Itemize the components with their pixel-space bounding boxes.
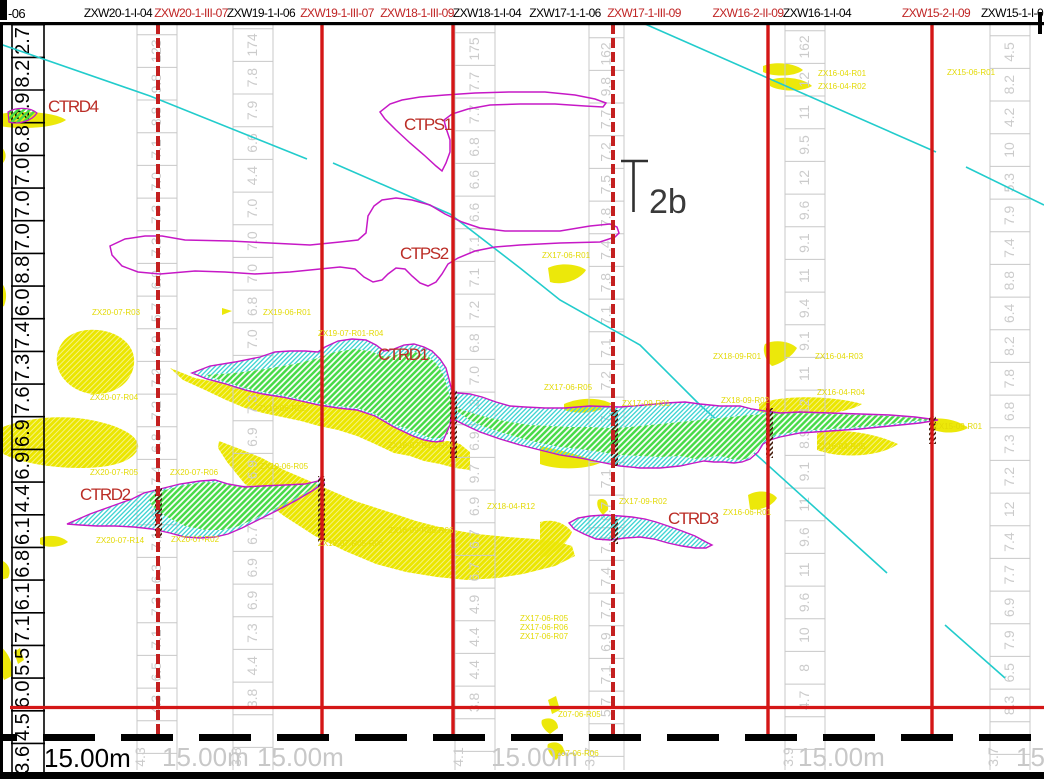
svg-text:ZX16-04-R05: ZX16-04-R05 <box>817 442 866 451</box>
svg-text:6.0: 6.0 <box>12 288 34 316</box>
svg-text:15.00m: 15.00m <box>44 743 131 773</box>
svg-text:ZX20-07-R03: ZX20-07-R03 <box>92 308 141 317</box>
svg-text:6.6: 6.6 <box>244 133 260 153</box>
svg-text:4.4: 4.4 <box>244 656 260 676</box>
svg-text:8: 8 <box>796 664 812 672</box>
svg-text:4.4: 4.4 <box>466 660 482 680</box>
svg-text:ZX18-09-R01: ZX18-09-R01 <box>713 352 762 361</box>
svg-text:5.3: 5.3 <box>1001 173 1017 193</box>
svg-text:ZXW16-2-II-09: ZXW16-2-II-09 <box>713 6 785 20</box>
svg-text:ZXW19-1-III-07: ZXW19-1-III-07 <box>300 6 375 20</box>
svg-text:ZXW18-1-III-09: ZXW18-1-III-09 <box>380 6 455 20</box>
svg-text:9.6: 9.6 <box>796 592 812 612</box>
svg-text:ZX16-04-R04: ZX16-04-R04 <box>817 388 866 397</box>
svg-text:9.6: 9.6 <box>796 527 812 547</box>
svg-text:3.8: 3.8 <box>244 688 260 708</box>
svg-text:15.00m: 15.00m <box>1016 742 1044 772</box>
svg-text:7.4: 7.4 <box>12 321 34 349</box>
svg-text:7.0: 7.0 <box>12 223 34 251</box>
svg-text:ZX17-09-R02: ZX17-09-R02 <box>619 497 668 506</box>
svg-text:12: 12 <box>1001 501 1017 517</box>
svg-text:CTRD2: CTRD2 <box>80 485 131 504</box>
svg-text:ZX17-06-R05: ZX17-06-R05 <box>544 383 593 392</box>
svg-text:8.2: 8.2 <box>1001 336 1017 356</box>
svg-text:4.9: 4.9 <box>466 594 482 614</box>
svg-text:ZX16-04-R01: ZX16-04-R01 <box>818 69 867 78</box>
svg-text:ZXW17-1-1-06: ZXW17-1-1-06 <box>529 6 601 20</box>
svg-text:9.1: 9.1 <box>796 233 812 253</box>
svg-text:CTPS2: CTPS2 <box>400 244 449 263</box>
svg-text:7.9: 7.9 <box>244 100 260 120</box>
svg-text:15.00m: 15.00m <box>257 742 344 772</box>
svg-text:4.3: 4.3 <box>132 747 148 767</box>
svg-text:ZX18-09-R02: ZX18-09-R02 <box>721 396 770 405</box>
svg-text:175: 175 <box>466 37 482 61</box>
svg-text:ZXW20-1-III-07: ZXW20-1-III-07 <box>154 6 229 20</box>
svg-text:6.8: 6.8 <box>466 333 482 353</box>
svg-text:ZX17-06-R05: ZX17-06-R05 <box>520 614 569 623</box>
svg-text:6.9: 6.9 <box>244 460 260 480</box>
svg-text:ZX17-06-R06: ZX17-06-R06 <box>520 623 569 632</box>
svg-text:CTRD3: CTRD3 <box>668 509 719 528</box>
svg-text:3.9: 3.9 <box>780 747 796 767</box>
svg-text:162: 162 <box>796 35 812 59</box>
svg-text:ZX19-06-R01: ZX19-06-R01 <box>263 308 312 317</box>
svg-text:ZX20-07-R05: ZX20-07-R05 <box>90 468 139 477</box>
svg-text:8.8: 8.8 <box>12 256 34 284</box>
svg-text:ZX20-07-R02: ZX20-07-R02 <box>171 535 220 544</box>
svg-text:ZX19-06-R02: ZX19-06-R02 <box>258 404 307 413</box>
svg-text:ZX18-04-R12: ZX18-04-R12 <box>487 502 536 511</box>
svg-text:5.5: 5.5 <box>12 648 34 676</box>
svg-text:Z07-06-R06: Z07-06-R06 <box>556 749 599 758</box>
svg-text:9.6: 9.6 <box>796 200 812 220</box>
svg-text:6.7: 6.7 <box>466 562 482 582</box>
svg-text:11: 11 <box>796 562 812 577</box>
svg-text:7.2: 7.2 <box>1001 467 1017 487</box>
svg-text:9.1: 9.1 <box>796 462 812 482</box>
svg-text:3.6: 3.6 <box>12 746 34 774</box>
svg-text:6.4: 6.4 <box>1001 303 1017 323</box>
svg-text:6.9: 6.9 <box>1001 597 1017 617</box>
svg-text:6.7: 6.7 <box>466 529 482 549</box>
svg-text:6.1: 6.1 <box>12 582 34 610</box>
svg-text:6.9: 6.9 <box>244 558 260 578</box>
svg-text:9.1: 9.1 <box>796 331 812 351</box>
svg-text:ZX16-04-R02: ZX16-04-R02 <box>818 82 867 91</box>
svg-text:9.7: 9.7 <box>466 464 482 484</box>
svg-text:6.8: 6.8 <box>12 550 34 578</box>
svg-text:8.2: 8.2 <box>12 60 34 88</box>
svg-text:12: 12 <box>796 170 812 186</box>
svg-text:ZXW17-1-III-09: ZXW17-1-III-09 <box>607 6 682 20</box>
svg-text:Z07-06-R05: Z07-06-R05 <box>558 710 601 719</box>
svg-text:6.9: 6.9 <box>466 496 482 516</box>
svg-text:7.0: 7.0 <box>244 329 260 349</box>
svg-text:ZX18-07-R13-R14: ZX18-07-R13-R14 <box>388 441 454 450</box>
svg-text:6.9: 6.9 <box>466 431 482 451</box>
svg-text:7.0: 7.0 <box>12 190 34 218</box>
svg-text:7.3: 7.3 <box>1001 434 1017 454</box>
svg-text:15.00m: 15.00m <box>798 742 885 772</box>
svg-text:ZX20-07-R04: ZX20-07-R04 <box>90 393 139 402</box>
svg-text:174: 174 <box>244 33 260 57</box>
svg-text:6.9: 6.9 <box>12 452 34 480</box>
svg-text:7.8: 7.8 <box>1001 369 1017 389</box>
svg-text:6.6: 6.6 <box>466 202 482 222</box>
svg-text:11: 11 <box>796 366 812 381</box>
svg-text:ZXW16-1-I-04: ZXW16-1-I-04 <box>783 6 852 20</box>
svg-text:7.4: 7.4 <box>1001 532 1017 552</box>
svg-text:ZX18-09-R05-R06: ZX18-09-R05-R06 <box>388 526 454 535</box>
svg-text:ZX20-07-R14: ZX20-07-R14 <box>96 536 145 545</box>
svg-text:ZX16-04-R03: ZX16-04-R03 <box>815 352 864 361</box>
svg-text:6.8: 6.8 <box>1001 401 1017 421</box>
svg-text:7.9: 7.9 <box>1001 205 1017 225</box>
svg-text:6.1: 6.1 <box>12 517 34 545</box>
svg-text:8.3: 8.3 <box>1001 695 1017 715</box>
svg-text:7.8: 7.8 <box>244 68 260 88</box>
svg-text:4.4: 4.4 <box>466 627 482 647</box>
svg-text:6.9: 6.9 <box>244 590 260 610</box>
svg-text:6.9: 6.9 <box>12 419 34 447</box>
svg-text:ZXW15-1-I-0: ZXW15-1-I-0 <box>981 6 1044 20</box>
svg-text:15.00m: 15.00m <box>162 742 249 772</box>
svg-text:7.3: 7.3 <box>12 354 34 382</box>
svg-text:ZX17-06-R01: ZX17-06-R01 <box>542 251 591 260</box>
svg-text:8.2: 8.2 <box>1001 75 1017 95</box>
svg-text:12: 12 <box>796 72 812 88</box>
svg-text:7.3: 7.3 <box>244 623 260 643</box>
svg-text:7.7: 7.7 <box>466 72 482 92</box>
svg-text:7.9: 7.9 <box>1001 630 1017 650</box>
svg-text:ZX17-06-R07: ZX17-06-R07 <box>520 632 569 641</box>
svg-text:ZX19-07-R05-R06: ZX19-07-R05-R06 <box>318 539 384 548</box>
svg-text:7.0: 7.0 <box>466 366 482 386</box>
svg-text:7.0: 7.0 <box>244 231 260 251</box>
svg-text:11: 11 <box>796 268 812 283</box>
svg-text:6.7: 6.7 <box>244 525 260 545</box>
svg-text:ZX16-06-R01: ZX16-06-R01 <box>723 508 772 517</box>
svg-text:7.0: 7.0 <box>244 198 260 218</box>
svg-text:10: 10 <box>1001 142 1017 158</box>
svg-text:11: 11 <box>796 497 812 512</box>
svg-text:ZX17-09-R01: ZX17-09-R01 <box>622 399 671 408</box>
svg-text:4.4: 4.4 <box>12 484 34 512</box>
svg-text:9.4: 9.4 <box>796 298 812 318</box>
svg-text:6.8: 6.8 <box>244 296 260 316</box>
svg-text:-06: -06 <box>8 6 25 21</box>
svg-text:6.9: 6.9 <box>244 427 260 447</box>
svg-text:2b: 2b <box>649 183 687 221</box>
svg-text:6.6: 6.6 <box>466 170 482 190</box>
svg-text:ZX19-06-R05: ZX19-06-R05 <box>260 462 309 471</box>
svg-text:7.7: 7.7 <box>1001 565 1017 585</box>
svg-text:ZXW18-1-I-04: ZXW18-1-I-04 <box>453 6 522 20</box>
svg-text:6.8: 6.8 <box>12 125 34 153</box>
svg-text:ZXW19-1-I-06: ZXW19-1-I-06 <box>227 6 296 20</box>
svg-text:ZX19-07-R01-R04: ZX19-07-R01-R04 <box>318 329 384 338</box>
svg-text:4.4: 4.4 <box>244 166 260 186</box>
svg-text:4.1: 4.1 <box>450 747 466 767</box>
svg-text:11: 11 <box>796 105 812 120</box>
svg-text:10: 10 <box>796 627 812 643</box>
svg-text:7.6: 7.6 <box>12 386 34 414</box>
svg-text:ZX15-06-R01: ZX15-06-R01 <box>947 68 996 77</box>
svg-text:6.8: 6.8 <box>466 137 482 157</box>
svg-text:ZX15-09-R01: ZX15-09-R01 <box>934 422 983 431</box>
svg-text:ZX20-07-R06: ZX20-07-R06 <box>170 468 219 477</box>
svg-text:CTPS1: CTPS1 <box>404 115 453 134</box>
svg-text:3.8: 3.8 <box>466 692 482 712</box>
svg-text:7.2: 7.2 <box>466 300 482 320</box>
svg-text:4.2: 4.2 <box>1001 107 1017 127</box>
svg-text:ZXW15-2-I-09: ZXW15-2-I-09 <box>902 6 971 20</box>
svg-text:4.5: 4.5 <box>1001 42 1017 62</box>
svg-text:6.0: 6.0 <box>12 680 34 708</box>
svg-text:ZXW20-1-I-04: ZXW20-1-I-04 <box>84 6 153 20</box>
svg-text:7.0: 7.0 <box>12 158 34 186</box>
svg-text:6.5: 6.5 <box>1001 663 1017 683</box>
svg-text:7.4: 7.4 <box>1001 238 1017 258</box>
svg-text:3.7: 3.7 <box>985 747 1001 767</box>
svg-text:7.1: 7.1 <box>12 615 34 643</box>
svg-text:7.1: 7.1 <box>466 268 482 288</box>
svg-text:CTRD1: CTRD1 <box>378 345 429 364</box>
svg-text:9.5: 9.5 <box>796 135 812 155</box>
svg-text:2.7: 2.7 <box>12 27 34 55</box>
svg-text:CTRD4: CTRD4 <box>48 97 99 116</box>
svg-text:8.8: 8.8 <box>1001 271 1017 291</box>
